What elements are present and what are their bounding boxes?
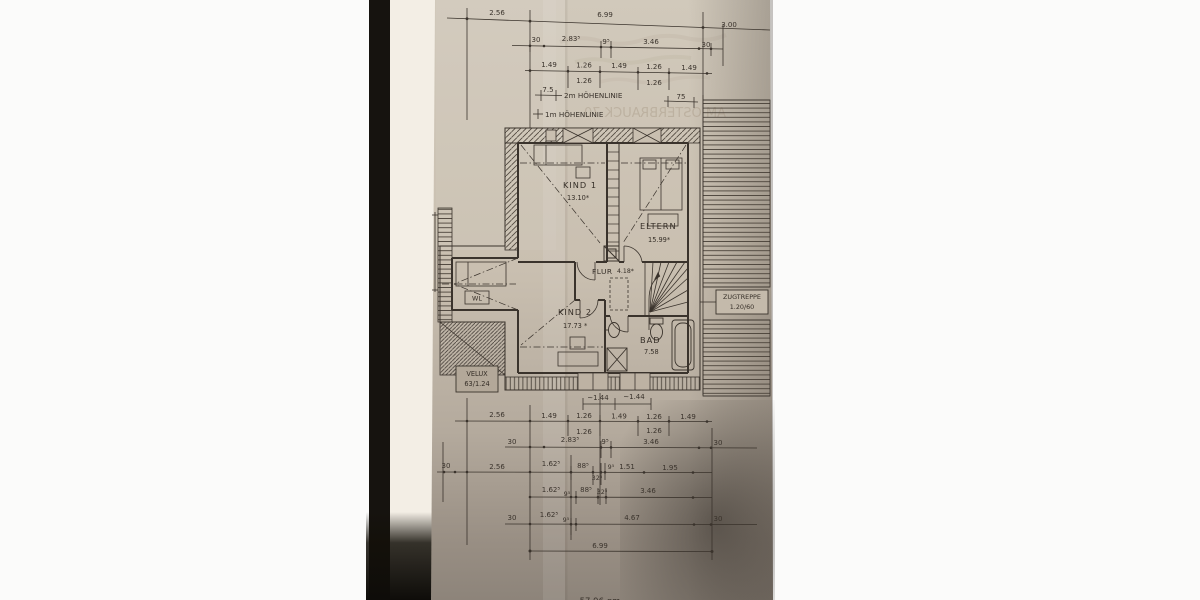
dim-label: 30 [714,439,723,447]
velux-label: VELUX [466,370,488,378]
dim-label: 30 [508,514,517,522]
zugtreppe-label: ZUGTREPPE [723,293,761,301]
paper-crease-line [565,0,568,600]
dim-label: 30 [532,36,541,44]
dim-label: 3.46 [643,438,659,446]
dim-label: ~1.44 [623,393,645,401]
dim-label: 1.26 [646,427,662,435]
room-name-eltern: ELTERN [640,221,677,231]
room-name-bad: BAD [640,335,661,345]
dim-label: 1.49 [541,61,557,69]
dim-label: 9⁵ [564,490,571,498]
dim-label: 1.49 [611,413,627,421]
dim-label: ~1.44 [587,394,609,402]
room-area-eltern: 15.99* [648,236,671,244]
dim-label: 4.67 [624,514,640,522]
dim-label: 1.26 [646,413,662,421]
room-name-kind1: KIND 1 [563,180,597,190]
paper-margin-strip [390,0,436,600]
dim-label: 30 [442,462,451,470]
dim-label: 1.62⁵ [542,486,561,494]
dim-label: 3.00 [721,21,737,29]
dim-label: 9⁵ [602,38,609,46]
photo-shadow-band [369,0,390,600]
dim-label: 30 [702,41,711,49]
dim-label: 1.26 [576,62,592,70]
dim-label: 32⁵ [597,488,608,496]
dim-label: 1.26 [576,412,592,420]
dim-label: 6.99 [597,11,613,19]
dim-label: 1.95 [662,464,678,472]
room-area-flur: 4.18* [617,268,634,275]
dim-label: 1.26 [576,77,592,85]
dim-label: 75 [677,93,686,101]
room-area-bad: 7.58 [644,348,659,356]
dim-label: 3.46 [643,38,659,46]
dim-label: 1.49 [680,413,696,421]
dim-label: 1.49 [611,62,627,70]
dim-label: 1.62⁵ [542,460,561,468]
dim-label: 2.56 [489,9,505,17]
dim-label: 30 [714,515,723,523]
dim-label: 7.5 [542,86,553,94]
dim-label: 1.49 [541,412,557,420]
dim-label: 2.83⁵ [562,35,581,43]
dim-label: 6.99 [592,542,608,550]
dim-label: 1.26 [576,428,592,436]
velux-size-label: 63/1.24 [464,380,489,388]
dim-label: 9⁵ [563,516,570,524]
dim-label: 2.83⁵ [561,436,580,444]
dim-label: 88⁵ [580,486,592,494]
hoehenlinie-1m-label: 1m HÖHENLINIE [545,110,604,119]
dim-label: 1.51 [619,463,635,471]
dim-label: 9⁵ [608,463,615,471]
dim-label: 2.56 [489,463,505,471]
room-area-kind1: 13.10* [567,194,590,202]
dim-label: 1.49 [681,64,697,72]
dim-label: 30 [508,438,517,446]
room-name-kind2: KIND 2 [558,307,592,317]
bottom-left-shadow [366,512,436,600]
dim-label: 32⁵ [592,474,603,482]
dim-label: 1.26 [646,79,662,87]
screenshot-root: AM OSTERBRAUCK 70 2.56 6.99 3.00 30 2.83… [0,0,1200,600]
photographed-floorplan: AM OSTERBRAUCK 70 2.56 6.99 3.00 30 2.83… [0,0,1200,600]
room-area-kind2: 17.73 * [563,322,588,330]
dim-label: 2.56 [489,411,505,419]
dim-label: 9⁵ [601,438,608,446]
zugtreppe-size-label: 1.20/60 [730,303,755,311]
dim-label: 3.46 [640,487,656,495]
wl-label: WL [472,295,482,303]
dim-label: 1.26 [646,63,662,71]
hoehenlinie-2m-label: 2m HÖHENLINIE [564,91,623,100]
room-name-flur: FLUR [592,267,613,276]
dim-label: 88⁵ [577,462,589,470]
dim-label: 1.62⁵ [540,511,559,519]
